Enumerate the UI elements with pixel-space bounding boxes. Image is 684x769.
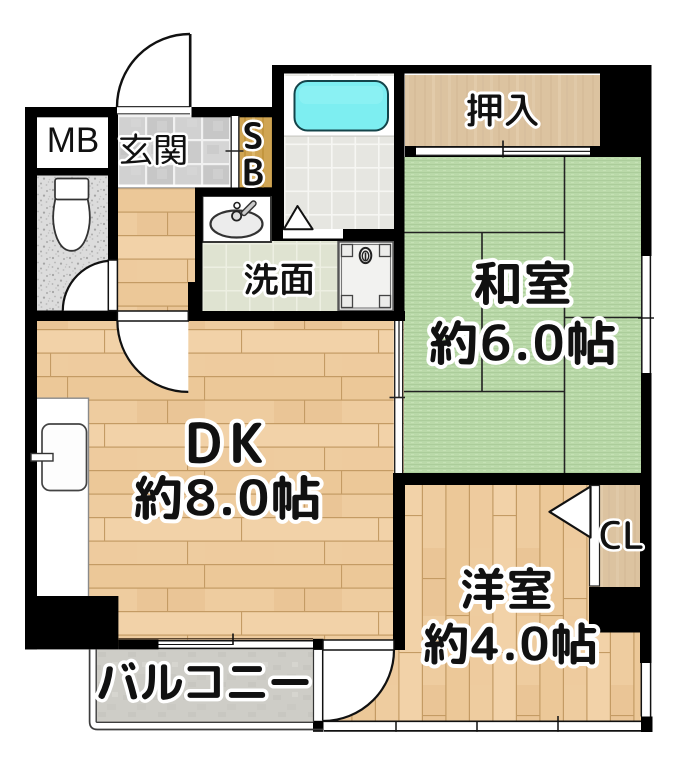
svg-text:MB: MB (47, 121, 100, 160)
